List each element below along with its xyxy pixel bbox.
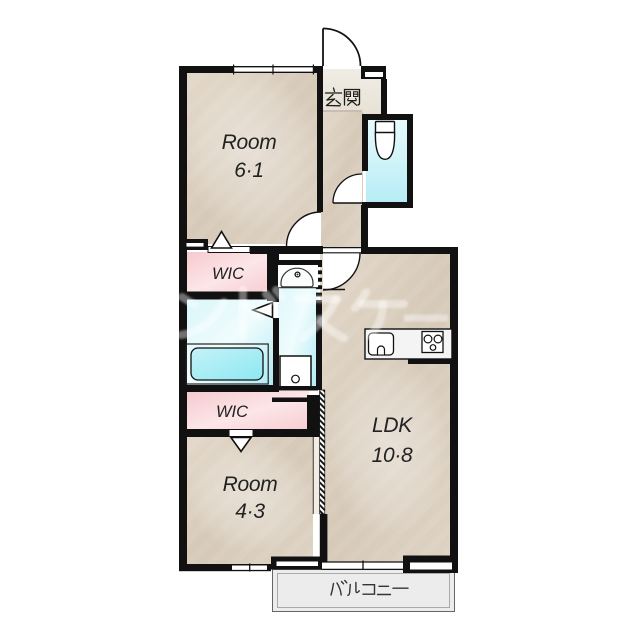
svg-text:LDK: LDK	[372, 414, 413, 437]
svg-text:10·8: 10·8	[372, 444, 413, 467]
svg-text:4·3: 4·3	[235, 500, 265, 523]
svg-text:WIC: WIC	[216, 403, 248, 421]
svg-text:Room: Room	[223, 473, 278, 496]
svg-text:Room: Room	[222, 131, 277, 154]
svg-text:6·1: 6·1	[234, 159, 263, 182]
svg-text:WIC: WIC	[212, 265, 244, 283]
